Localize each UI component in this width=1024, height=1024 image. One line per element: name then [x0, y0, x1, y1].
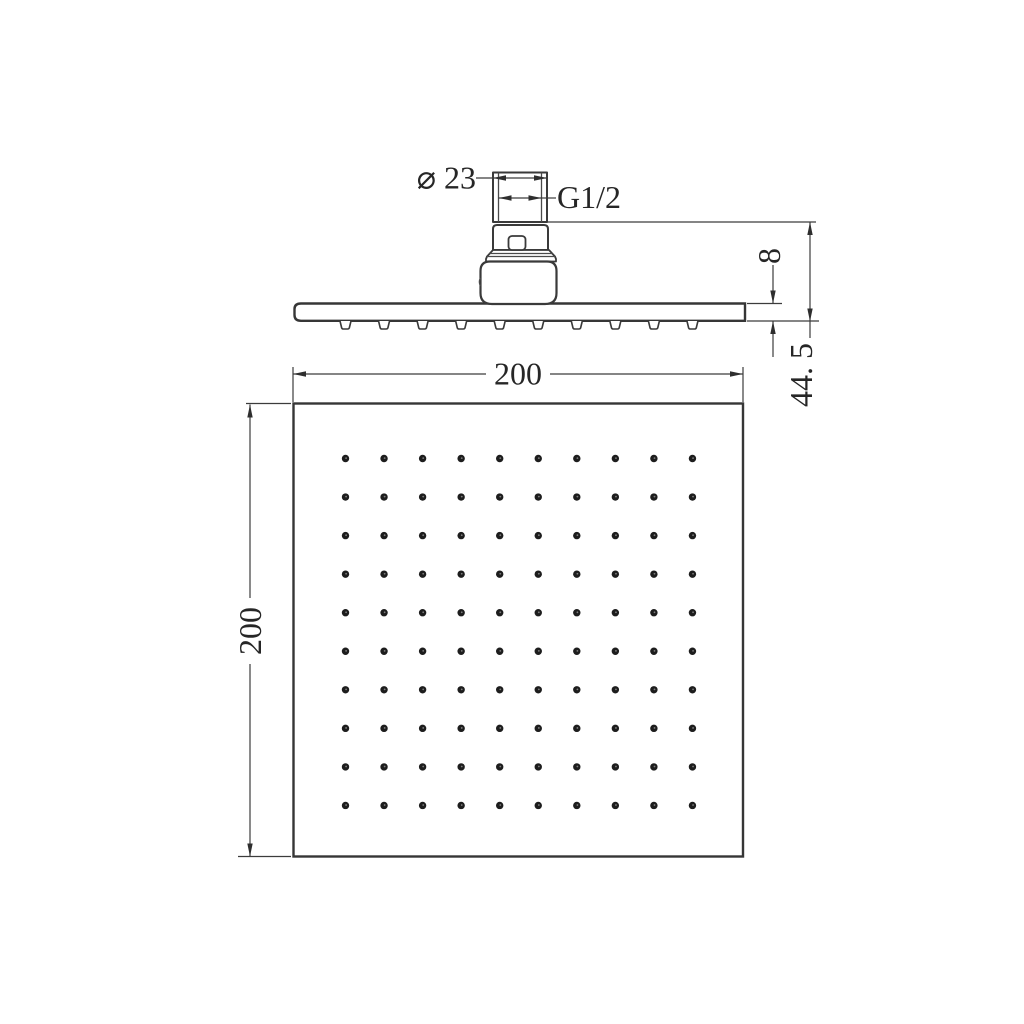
nozzle-dot-highlight [499, 727, 501, 729]
nozzle-dot-highlight [384, 534, 386, 536]
nozzle-dot-highlight [345, 689, 347, 691]
nozzle-dot-highlight [345, 611, 347, 613]
face-width-label: 200 [494, 356, 542, 392]
nozzle-dot-highlight [692, 727, 694, 729]
shower-head-drawing: ⌀ 23 G1/2 8 44. 5 200 200 [0, 0, 1024, 1024]
nozzle-dot-highlight [615, 496, 617, 498]
nozzle-dot-highlight [538, 534, 540, 536]
nozzle-dot-highlight [499, 496, 501, 498]
nozzle-dot-highlight [345, 804, 347, 806]
nozzle-dot-highlight [577, 534, 579, 536]
nozzle-dot-highlight [654, 650, 656, 652]
nozzle-dot-highlight [615, 804, 617, 806]
nozzle-dot-highlight [692, 804, 694, 806]
side-nozzle-bump [687, 321, 698, 329]
nozzle-dot-highlight [422, 766, 424, 768]
nozzle-dot-highlight [692, 611, 694, 613]
nozzle-dot-highlight [422, 689, 424, 691]
nozzle-dot-highlight [615, 689, 617, 691]
nozzle-dot-highlight [422, 727, 424, 729]
nozzle-dot-highlight [461, 573, 463, 575]
nozzle-dot-highlight [615, 611, 617, 613]
nozzle-dot-highlight [345, 496, 347, 498]
side-view [295, 173, 746, 330]
nozzle-dot-highlight [615, 573, 617, 575]
nozzle-dot-highlight [538, 573, 540, 575]
face-thickness-label: 8 [751, 248, 787, 264]
nozzle-dot-highlight [577, 496, 579, 498]
nozzle-dot-highlight [654, 766, 656, 768]
nozzle-dot-highlight [384, 804, 386, 806]
side-nozzle-bump [494, 321, 505, 329]
nozzle-dot-highlight [538, 650, 540, 652]
nozzle-dot-highlight [461, 611, 463, 613]
technical-drawing-page: ⌀ 23 G1/2 8 44. 5 200 200 [0, 0, 1024, 1024]
nozzle-dot-highlight [345, 457, 347, 459]
side-nozzle-bump [571, 321, 582, 329]
nozzle-dot-highlight [538, 804, 540, 806]
nozzle-dot-highlight [461, 804, 463, 806]
arrowhead-up [807, 222, 812, 235]
nozzle-dot-highlight [654, 611, 656, 613]
nozzle-dot-highlight [577, 689, 579, 691]
arrowhead-up [247, 405, 252, 418]
nozzle-dot-highlight [577, 766, 579, 768]
arrowhead-down [807, 309, 812, 322]
nozzle-dot-highlight [654, 534, 656, 536]
nozzle-dot-highlight [461, 650, 463, 652]
arrowhead-right [730, 371, 743, 376]
nozzle-dot-highlight [654, 573, 656, 575]
nozzle-dot-highlight [499, 534, 501, 536]
nozzle-dot-highlight [345, 727, 347, 729]
face-plate-side [295, 304, 746, 321]
grub-screw [509, 236, 526, 250]
nozzle-dot-highlight [422, 534, 424, 536]
nozzle-dot-highlight [461, 689, 463, 691]
inlet-diameter-label: ⌀ 23 [417, 160, 476, 196]
nozzle-dot-highlight [499, 650, 501, 652]
nozzle-dot-highlight [654, 727, 656, 729]
nozzle-dot-highlight [692, 573, 694, 575]
arrowhead-down [770, 291, 775, 304]
nozzle-dot-highlight [384, 689, 386, 691]
overall-height-label: 44. 5 [783, 343, 819, 407]
nozzle-dot-highlight [384, 496, 386, 498]
nozzle-dot-highlight [615, 650, 617, 652]
nozzle-dot-highlight [692, 689, 694, 691]
side-view-dimensions: ⌀ 23 G1/2 8 44. 5 [417, 160, 819, 408]
nozzle-dot-highlight [384, 650, 386, 652]
swivel-collar [486, 250, 556, 262]
nozzle-dot-highlight [538, 457, 540, 459]
nozzle-dot-highlight [384, 573, 386, 575]
nozzle-dot-highlight [654, 689, 656, 691]
nozzle-dot-highlight [499, 689, 501, 691]
side-nozzle-bump [456, 321, 467, 329]
nozzle-dot-highlight [422, 573, 424, 575]
nozzle-dot-highlight [538, 727, 540, 729]
nozzle-dot-highlight [461, 534, 463, 536]
nozzle-dot-highlight [384, 457, 386, 459]
nozzle-dot-highlight [615, 457, 617, 459]
nozzle-dot-highlight [499, 611, 501, 613]
nozzle-dot-highlight [345, 534, 347, 536]
nozzle-dot-highlight [384, 766, 386, 768]
nozzle-dot-highlight [577, 727, 579, 729]
side-nozzle-bump [610, 321, 621, 329]
nozzle-dot-highlight [461, 457, 463, 459]
nozzle-dot-highlight [654, 457, 656, 459]
inlet-pipe [493, 173, 547, 223]
side-nozzle-bump [648, 321, 659, 329]
nozzle-dot-highlight [461, 727, 463, 729]
nozzle-dot-highlight [538, 689, 540, 691]
nozzle-dot-highlight [345, 573, 347, 575]
nozzle-dot-highlight [577, 611, 579, 613]
nozzle-dot-highlight [692, 496, 694, 498]
side-nozzle-bump [417, 321, 428, 329]
nozzle-dot-highlight [577, 457, 579, 459]
nozzle-dot-highlight [577, 804, 579, 806]
nozzle-dot-highlight [499, 804, 501, 806]
nozzle-dot-highlight [615, 727, 617, 729]
face-plate-front [294, 404, 744, 857]
nozzle-dot-highlight [422, 611, 424, 613]
nozzle-dot-highlight [577, 573, 579, 575]
nozzle-dot-highlight [499, 457, 501, 459]
nozzle-dot-highlight [461, 766, 463, 768]
nozzle-dot-highlight [499, 766, 501, 768]
nozzle-dot-highlight [422, 496, 424, 498]
nozzle-dot-highlight [538, 496, 540, 498]
nozzle-dot-highlight [538, 766, 540, 768]
nozzle-dot-highlight [422, 457, 424, 459]
nozzle-dot-highlight [577, 650, 579, 652]
swivel-ball-housing [481, 262, 557, 305]
nozzle-dot-highlight [692, 534, 694, 536]
face-height-label: 200 [232, 607, 268, 655]
arrowhead-left [293, 371, 306, 376]
nozzle-dot-highlight [461, 496, 463, 498]
nozzle-dot-highlight [538, 611, 540, 613]
thread-size-label: G1/2 [557, 179, 621, 215]
nozzle-dot-highlight [422, 650, 424, 652]
side-nozzle-bumps [340, 321, 698, 329]
nozzle-dot-highlight [384, 727, 386, 729]
side-nozzle-bump [379, 321, 390, 329]
nozzle-dot-highlight [654, 496, 656, 498]
nozzle-dot-highlight [345, 650, 347, 652]
nozzle-dot-highlight [499, 573, 501, 575]
nozzle-dot-highlight [692, 650, 694, 652]
nozzle-dot-highlight [692, 766, 694, 768]
nozzle-dot-highlight [615, 766, 617, 768]
nozzle-dot-highlight [692, 457, 694, 459]
nozzle-dot-highlight [345, 766, 347, 768]
arrowhead-up [770, 321, 775, 334]
nozzle-dot-highlight [654, 804, 656, 806]
nozzle-dot-highlight [615, 534, 617, 536]
arrowhead-down [247, 844, 252, 857]
side-nozzle-bump [340, 321, 351, 329]
side-nozzle-bump [533, 321, 544, 329]
face-view [294, 404, 744, 857]
nozzle-dot-highlight [422, 804, 424, 806]
nozzle-dot-highlight [384, 611, 386, 613]
